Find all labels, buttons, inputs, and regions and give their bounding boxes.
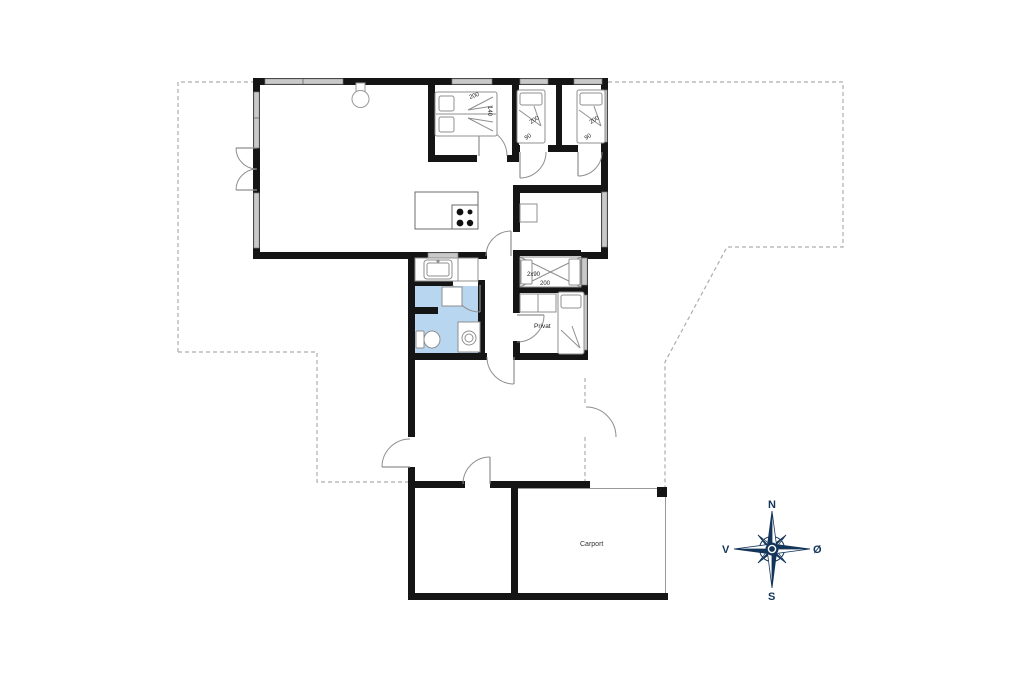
carport-post [657, 487, 667, 497]
compass-north-label: N [768, 499, 776, 511]
bunk-bed-length-label: 200 [540, 281, 551, 287]
single-bed-2 [577, 90, 605, 143]
compass-west-label: V [722, 544, 730, 556]
plot-boundary-dashed [178, 82, 843, 487]
stove [452, 205, 478, 229]
compass-east-label: Ø [813, 544, 822, 556]
compass-south-label: S [768, 591, 775, 603]
compass-rose: N S V Ø [722, 499, 822, 603]
floorplan-drawing: 200 140 200 90 200 90 2x90 200 Privat [0, 0, 1024, 682]
double-bed-width-label: 140 [486, 106, 492, 117]
single-bed-1 [517, 90, 545, 143]
ceiling-lamp-icon [352, 83, 369, 108]
shower-mat [442, 287, 462, 306]
bunk-bed-size-label: 2x90 [527, 272, 541, 278]
private-room-label: Privat [534, 323, 551, 330]
washing-machine [458, 322, 480, 352]
carport-outline [518, 487, 667, 593]
private-room-furniture [520, 292, 584, 354]
floorplan-canvas: 200 140 200 90 200 90 2x90 200 Privat [0, 0, 1024, 682]
utility-sink [415, 258, 478, 281]
toilet [416, 331, 440, 348]
carport-label: Carport [580, 541, 603, 548]
closet [520, 204, 537, 222]
kitchen-island [415, 192, 478, 229]
